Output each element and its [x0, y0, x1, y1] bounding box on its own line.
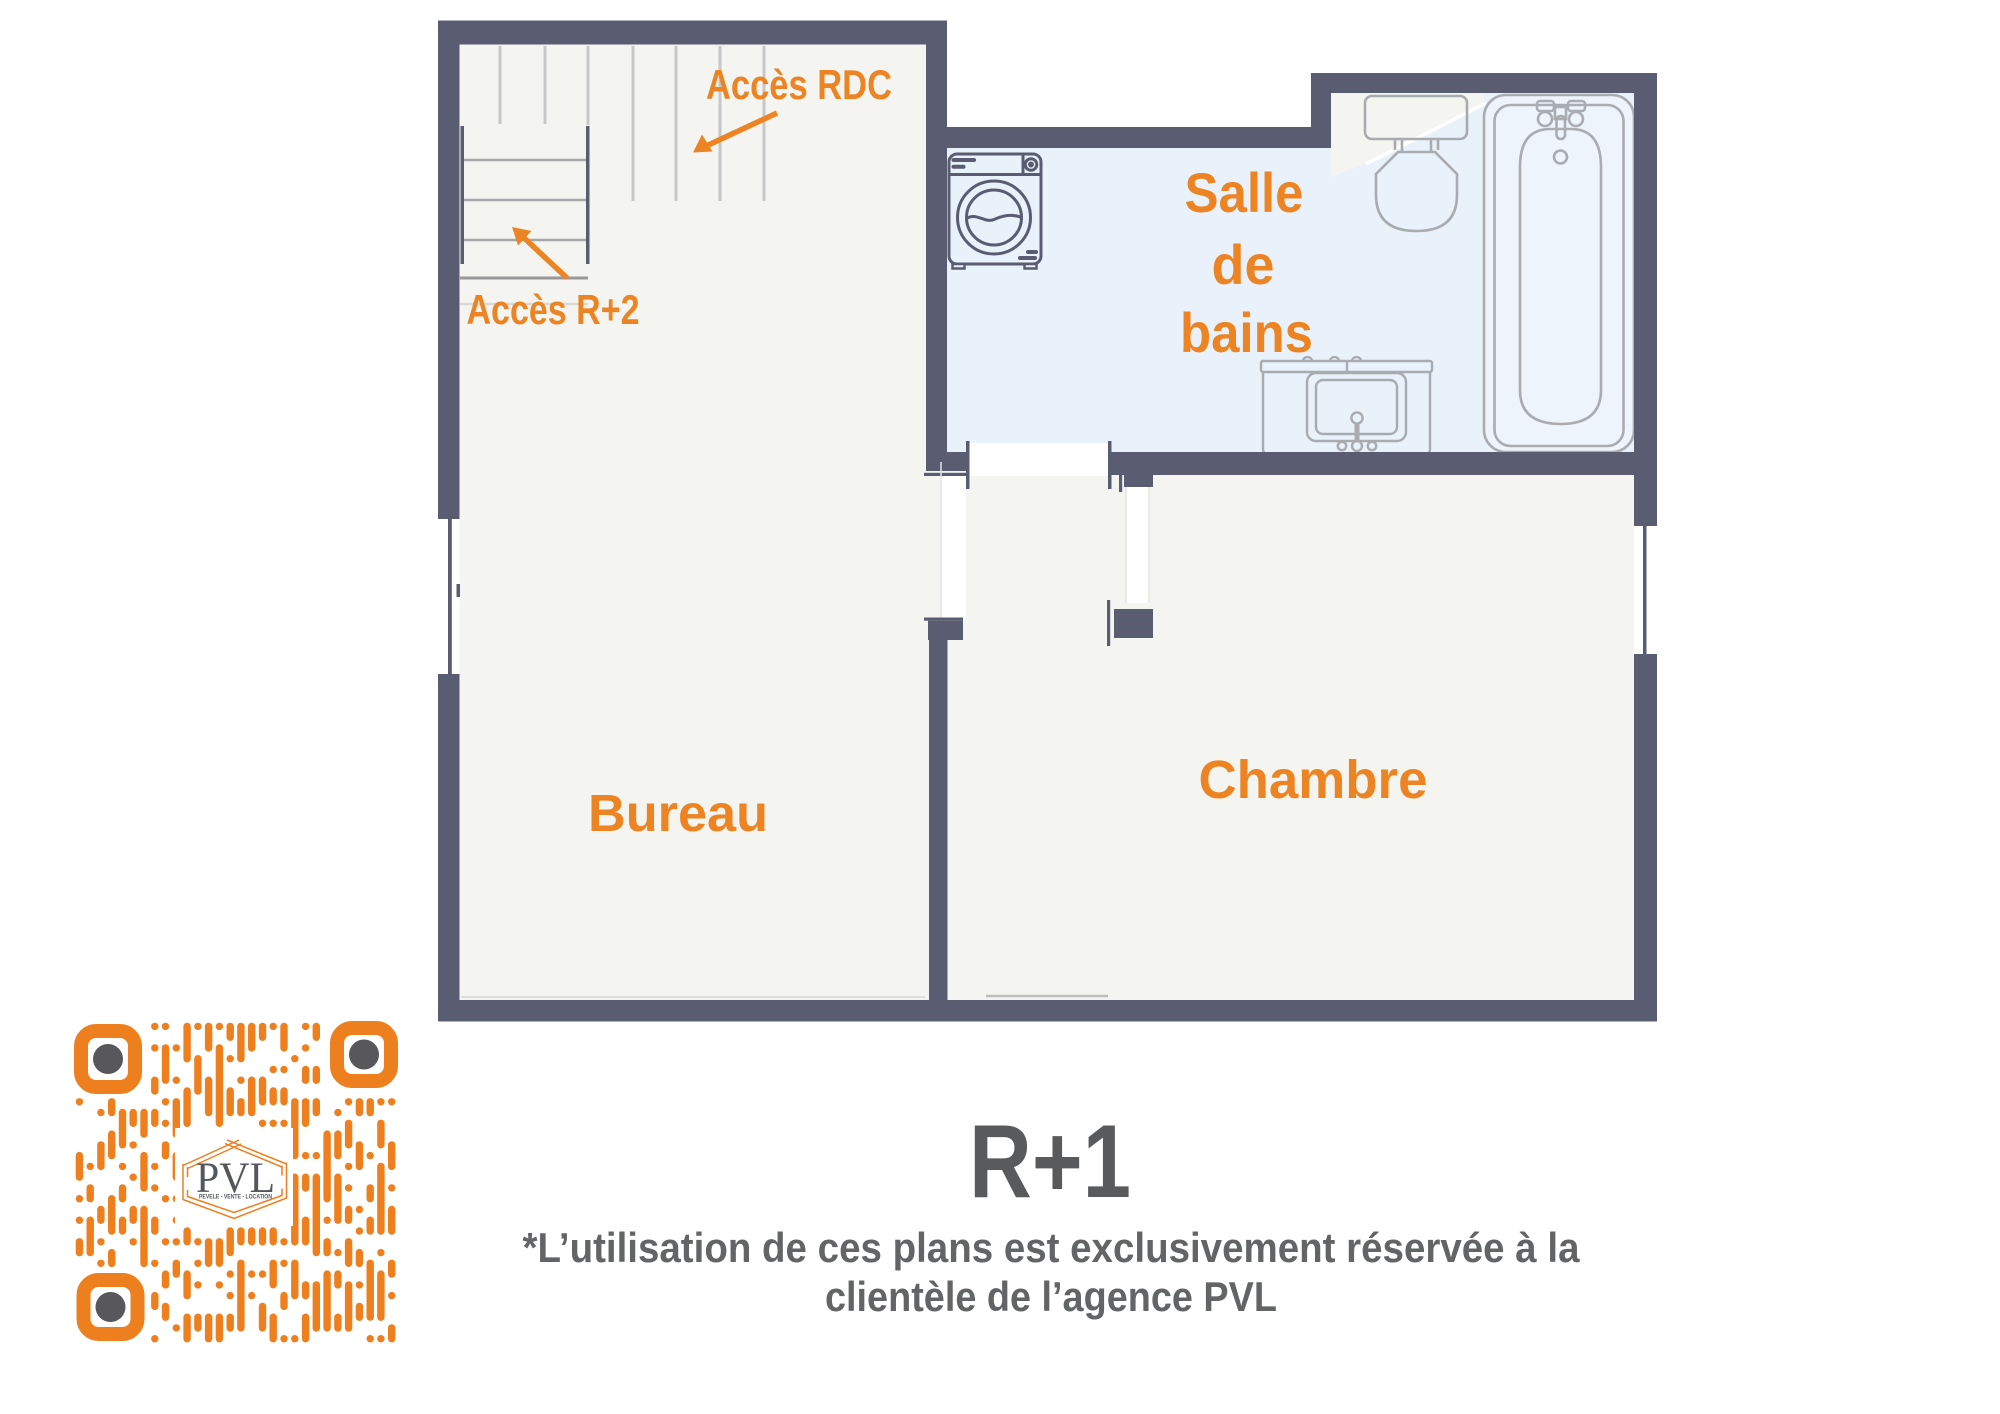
svg-text:PEVELE - VENTE - LOCATION: PEVELE - VENTE - LOCATION	[199, 1193, 272, 1200]
svg-text:bains: bains	[1180, 301, 1313, 364]
svg-text:*L’utilisation de ces plans es: *L’utilisation de ces plans est exclusiv…	[523, 1224, 1581, 1271]
svg-text:Accès R+2: Accès R+2	[467, 286, 640, 333]
svg-text:R+1: R+1	[969, 1104, 1131, 1220]
svg-text:de: de	[1212, 233, 1275, 296]
svg-text:Chambre: Chambre	[1199, 750, 1428, 810]
svg-text:Bureau: Bureau	[588, 785, 768, 843]
svg-text:clientèle de l’agence PVL: clientèle de l’agence PVL	[825, 1273, 1277, 1320]
svg-text:Accès RDC: Accès RDC	[706, 61, 892, 108]
svg-text:Salle: Salle	[1185, 161, 1304, 224]
